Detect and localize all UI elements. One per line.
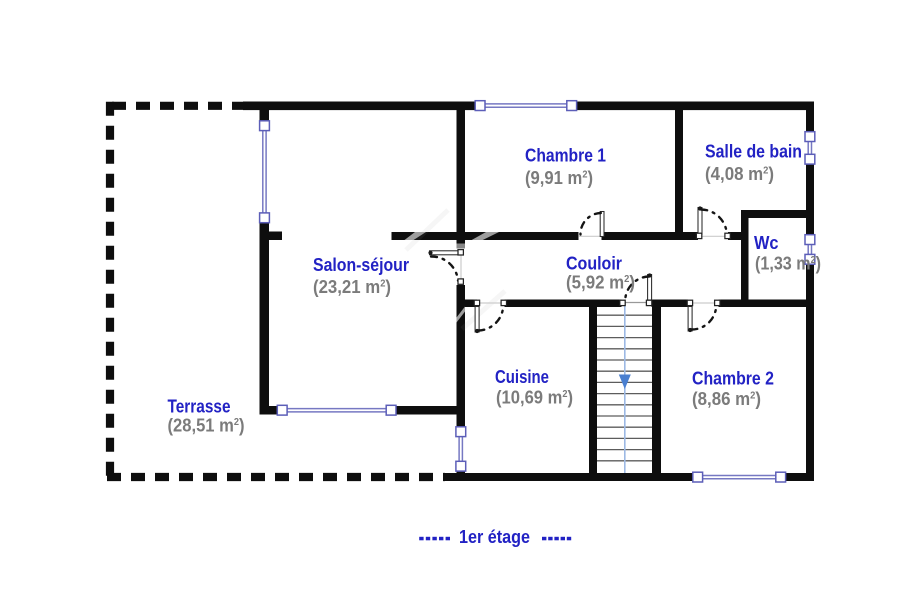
svg-text:Salon-séjour: Salon-séjour xyxy=(313,255,409,275)
svg-text:(10,69 m2): (10,69 m2) xyxy=(496,388,573,408)
svg-text:Terrasse: Terrasse xyxy=(168,397,231,417)
svg-text:(23,21 m2): (23,21 m2) xyxy=(313,277,391,297)
svg-text:Cuisine: Cuisine xyxy=(495,367,549,387)
svg-text:1er étage: 1er étage xyxy=(459,527,530,547)
svg-text:Couloir: Couloir xyxy=(566,254,622,274)
svg-text:Chambre 2: Chambre 2 xyxy=(692,369,774,389)
svg-text:(28,51 m2): (28,51 m2) xyxy=(168,416,245,436)
svg-text:Salle de bain: Salle de bain xyxy=(705,142,802,162)
svg-text:Wc: Wc xyxy=(754,233,779,253)
svg-text:Chambre 1: Chambre 1 xyxy=(525,146,606,166)
